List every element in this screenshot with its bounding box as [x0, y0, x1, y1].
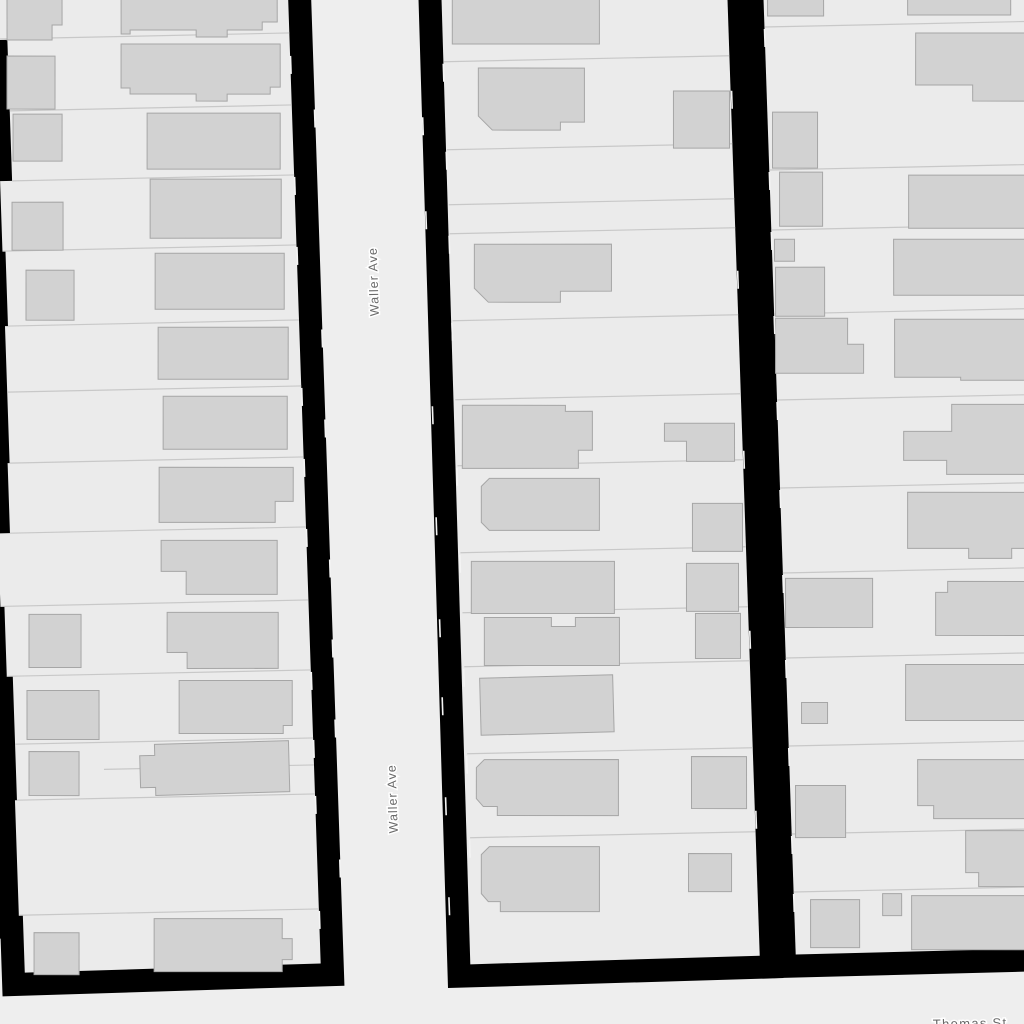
svg-text:Thomas St: Thomas St [933, 1015, 1008, 1024]
svg-text:Waller Ave: Waller Ave [366, 247, 382, 316]
svg-text:Waller Ave: Waller Ave [385, 764, 401, 833]
